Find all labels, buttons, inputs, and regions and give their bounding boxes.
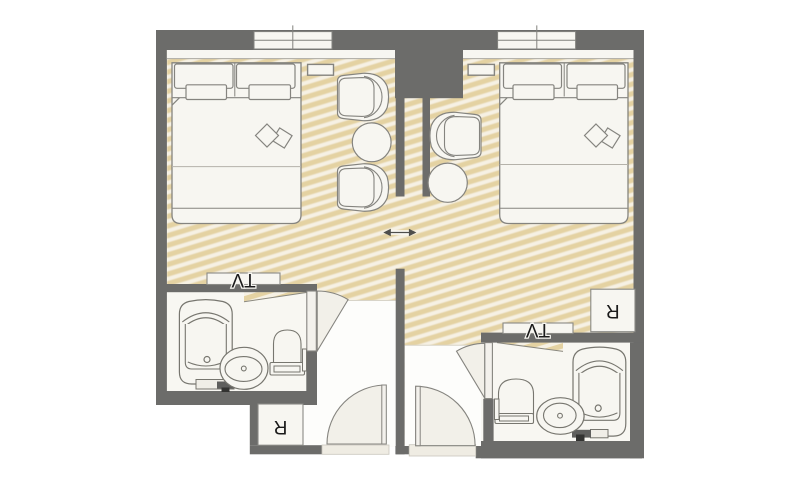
svg-text:TV: TV [231,269,256,290]
svg-text:TV: TV [526,319,551,340]
svg-text:R: R [606,300,620,321]
svg-text:R: R [274,416,288,437]
